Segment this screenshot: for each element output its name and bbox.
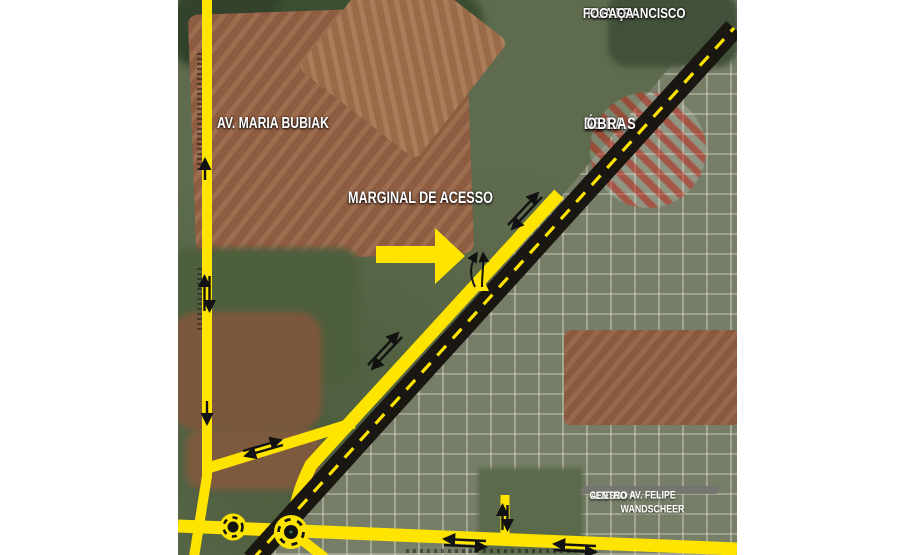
roundabout-west-icon — [220, 514, 247, 541]
roundabout-east-icon — [274, 515, 308, 549]
label-line: AV. MARIA BUBIAK — [217, 115, 329, 132]
satellite-map: RUA FRANCISCO FOGAÇA AV. MARIA BUBIAK MA… — [178, 0, 737, 555]
label-line: CENTRO — [590, 489, 627, 503]
label-line: OBRAS — [587, 113, 637, 137]
label-line: FOGAÇA — [583, 5, 634, 21]
infographic-canvas: RUA FRANCISCO FOGAÇA AV. MARIA BUBIAK MA… — [0, 0, 915, 555]
roads-overlay — [178, 0, 737, 555]
label-acesso-av-felipe-wandscheer: ACESSO A AV. FELIPE WANDSCHEER CENTRO — [581, 486, 719, 494]
label-line: MARGINAL DE ACESSO — [348, 189, 493, 207]
big-pointer-arrow-icon — [376, 228, 465, 284]
